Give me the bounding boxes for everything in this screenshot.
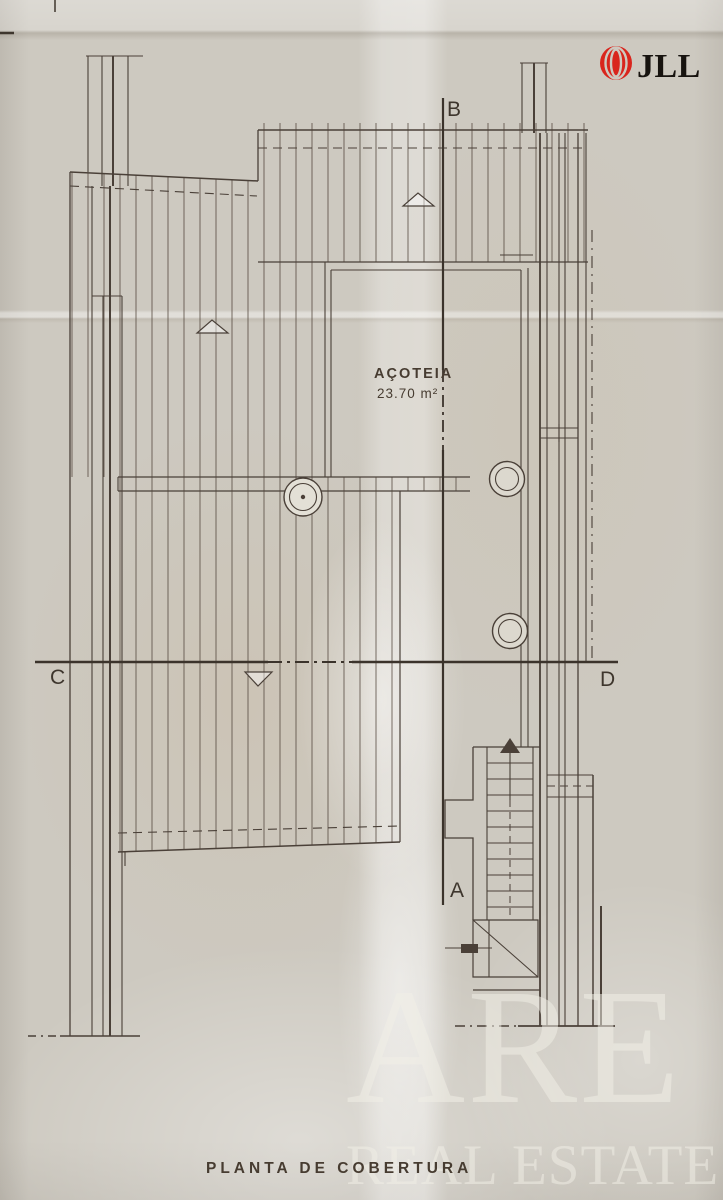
section-marker-c: C <box>50 666 65 689</box>
upper-right-roof-hatch <box>258 123 588 262</box>
acoteia-label: AÇOTEIA <box>374 366 453 382</box>
roof-plan-drawing <box>28 56 615 1036</box>
section-marker-a: A <box>450 879 464 902</box>
drawing-caption: PLANTA DE COBERTURA <box>206 1160 472 1177</box>
chimney-lines <box>86 56 143 186</box>
watermark-are: ARE <box>346 955 682 1138</box>
door-marker <box>461 944 478 953</box>
jll-logo-mark-icon <box>600 46 632 80</box>
paper-sheet: B A C D AÇOTEIA 23.70 m² ARE REAL ESTATE… <box>0 0 723 1200</box>
jll-logo-text: JLL <box>637 48 701 85</box>
scan-artifact-marks <box>0 0 55 33</box>
roof-plan-svg: B A C D AÇOTEIA 23.70 m² ARE REAL ESTATE… <box>0 0 723 1200</box>
drain-circle <box>490 462 525 497</box>
east-parapet-lines <box>455 133 615 1026</box>
section-marker-d: D <box>600 668 615 691</box>
drain-circle <box>284 478 322 516</box>
vent-lines-top-right <box>520 63 548 133</box>
jll-logo: JLL <box>600 46 701 85</box>
staircase <box>445 738 540 990</box>
acoteia-area-value: 23.70 m² <box>377 386 438 401</box>
section-marker-b: B <box>447 98 461 121</box>
stair-direction-arrow-icon <box>500 738 520 753</box>
drain-circle <box>493 614 528 649</box>
